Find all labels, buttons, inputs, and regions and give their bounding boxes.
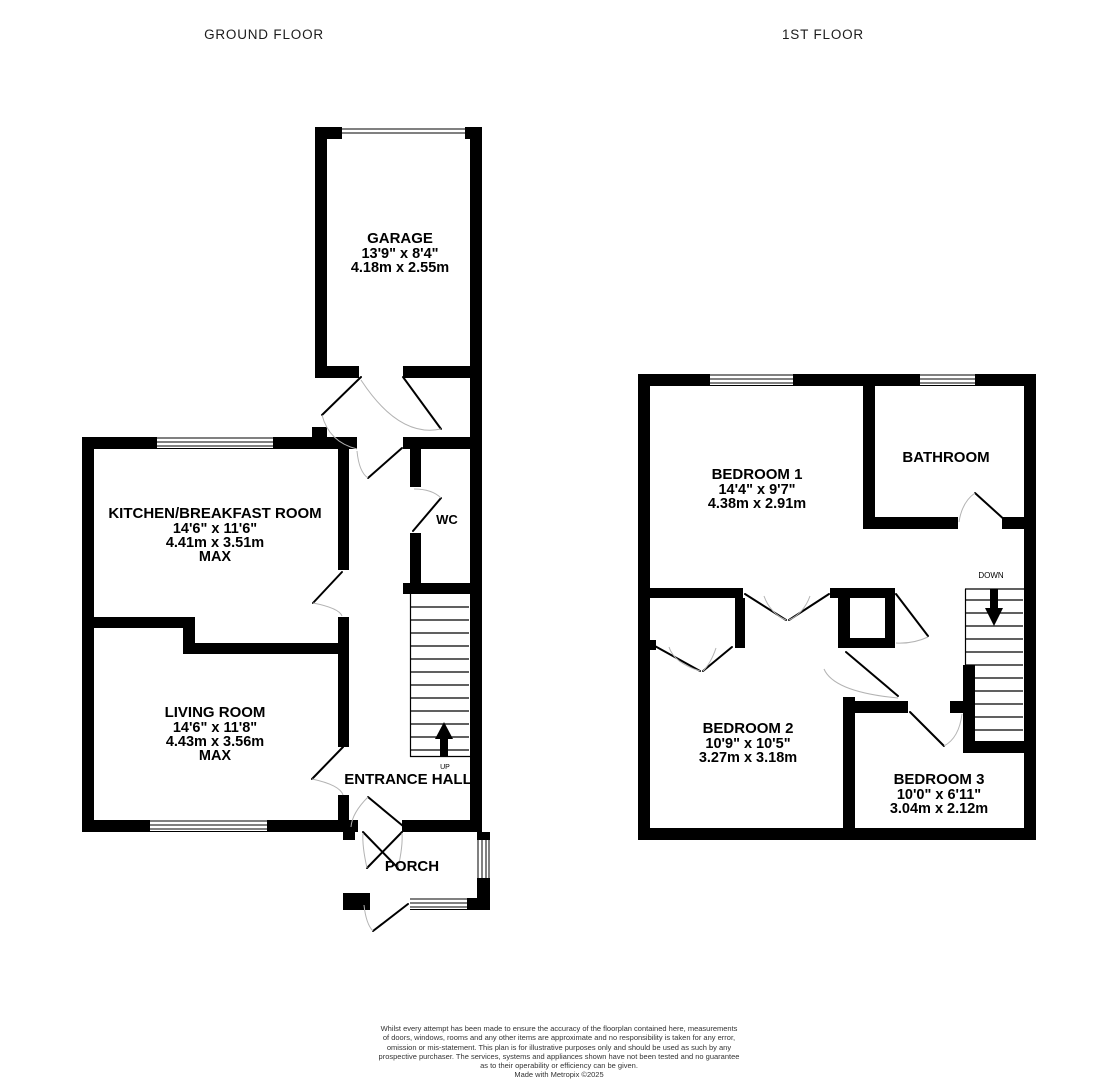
room-label-porch: PORCH xyxy=(385,858,439,875)
room-bedroom1: BEDROOM 1 14'4" x 9'7" 4.38m x 2.91m xyxy=(708,466,806,512)
wall-segment xyxy=(338,617,349,747)
wall-segment xyxy=(82,437,157,449)
wall-segment xyxy=(843,697,855,833)
wall-segment xyxy=(638,374,650,840)
landing-door-swing xyxy=(824,652,898,698)
room-label: GARAGE xyxy=(367,230,433,247)
wall-segment xyxy=(477,878,490,910)
stairs-down-label: DOWN xyxy=(978,571,1004,580)
ground-floor-plan: GARAGE 13'9" x 8'4" 4.18m x 2.55m KITCHE… xyxy=(82,127,490,931)
living-room-door-swing xyxy=(312,747,343,795)
room-label: BEDROOM 3 xyxy=(894,771,985,788)
wall-segment xyxy=(343,827,355,840)
room-label-wc: WC xyxy=(436,512,458,527)
room-size-metric: 4.18m x 2.55m xyxy=(351,260,449,276)
wall-segment xyxy=(343,898,363,910)
bedroom3-door-swing xyxy=(910,712,962,746)
wall-segment xyxy=(863,374,875,529)
room-size-qualifier: MAX xyxy=(199,549,232,565)
wall-segment xyxy=(183,643,345,654)
wall-segment xyxy=(735,598,745,648)
bathroom-window xyxy=(920,374,975,386)
wall-segment xyxy=(82,437,94,832)
wall-segment xyxy=(338,449,349,570)
room-garage: GARAGE 13'9" x 8'4" 4.18m x 2.55m xyxy=(351,230,449,276)
wall-segment xyxy=(403,583,482,594)
room-bedroom2: BEDROOM 2 10'9" x 10'5" 3.27m x 3.18m xyxy=(699,720,797,766)
room-label: BEDROOM 1 xyxy=(712,466,803,483)
room-size-metric: 4.38m x 2.91m xyxy=(708,496,806,512)
wall-segment xyxy=(638,828,1036,840)
wall-segment xyxy=(410,533,421,583)
wall-segment xyxy=(315,366,359,378)
wall-segment xyxy=(82,617,195,628)
wall-segment xyxy=(863,517,958,529)
bedroom1-door-swing xyxy=(745,594,829,620)
room-size-metric: 3.04m x 2.12m xyxy=(890,801,988,817)
room-label: BEDROOM 2 xyxy=(703,720,794,737)
wall-segment xyxy=(402,820,482,832)
wall-segment xyxy=(838,598,850,640)
wall-segment xyxy=(403,437,482,449)
disclaimer-line: prospective purchaser. The services, sys… xyxy=(0,1052,1118,1061)
room-living: LIVING ROOM 14'6" x 11'8" 4.43m x 3.56m … xyxy=(165,704,266,764)
disclaimer-text: Whilst every attempt has been made to en… xyxy=(0,1024,1118,1080)
wall-segment xyxy=(1024,374,1036,840)
disclaimer-line: of doors, windows, rooms and any other i… xyxy=(0,1033,1118,1042)
room-label-entrance-hall: ENTRANCE HALL xyxy=(344,771,472,788)
wall-segment xyxy=(82,820,150,832)
wall-segment xyxy=(793,374,920,386)
wall-segment xyxy=(273,437,312,449)
wall-segment xyxy=(885,588,895,648)
front-door-swing xyxy=(364,904,408,931)
wall-segment xyxy=(963,665,975,753)
hall-door-swing xyxy=(357,448,402,478)
stair-treads xyxy=(411,607,469,750)
bathroom-door-swing xyxy=(959,493,1007,522)
cupboard-door-swing xyxy=(896,594,928,643)
floorplan-canvas: GROUND FLOOR 1ST FLOOR xyxy=(0,0,1118,1080)
disclaimer-credit: Made with Metropix ©2025 xyxy=(0,1070,1118,1079)
porch-side-window xyxy=(477,840,490,878)
disclaimer-line: omission or mis-statement. This plan is … xyxy=(0,1043,1118,1052)
wall-segment xyxy=(403,366,482,378)
room-size-qualifier: MAX xyxy=(199,748,232,764)
wall-segment xyxy=(963,741,1024,753)
wall-segment xyxy=(648,588,743,598)
room-size-metric: 3.27m x 3.18m xyxy=(699,750,797,766)
wall-segment xyxy=(465,127,482,139)
down-arrow-icon xyxy=(985,589,1003,626)
living-room-window xyxy=(150,820,267,832)
wall-segment xyxy=(315,127,342,139)
wall-segment xyxy=(477,832,490,840)
bedroom2-door-swing xyxy=(653,645,732,671)
room-label-bathroom: BATHROOM xyxy=(902,449,989,466)
room-label: KITCHEN/BREAKFAST ROOM xyxy=(108,505,321,522)
room-label: LIVING ROOM xyxy=(165,704,266,721)
wall-segment xyxy=(312,427,327,449)
garage-door xyxy=(342,129,465,133)
wall-segment xyxy=(470,127,482,832)
wall-segment xyxy=(315,127,327,373)
stairs-up-label: UP xyxy=(440,764,450,771)
kitchen-window xyxy=(157,437,273,449)
floorplan-page: GROUND FLOOR 1ST FLOOR xyxy=(0,0,1118,1080)
disclaimer-line: Whilst every attempt has been made to en… xyxy=(0,1024,1118,1033)
room-bedroom3: BEDROOM 3 10'0" x 6'11" 3.04m x 2.12m xyxy=(890,771,988,817)
wall-segment xyxy=(1002,517,1036,529)
disclaimer-line: as to their operability or efficiency ca… xyxy=(0,1061,1118,1070)
wall-segment xyxy=(410,449,421,487)
first-floor-title: 1ST FLOOR xyxy=(782,27,864,42)
porch-front-window xyxy=(410,898,467,910)
stairs-ground xyxy=(410,594,470,757)
wall-segment xyxy=(843,701,908,713)
up-arrow-icon xyxy=(435,722,453,757)
ground-floor-title: GROUND FLOOR xyxy=(204,27,324,42)
kitchen-door-swing xyxy=(313,572,342,616)
first-floor-plan: BEDROOM 1 14'4" x 9'7" 4.38m x 2.91m BAT… xyxy=(638,374,1036,840)
room-kitchen: KITCHEN/BREAKFAST ROOM 14'6" x 11'6" 4.4… xyxy=(108,505,321,565)
bedroom1-window xyxy=(710,374,793,386)
